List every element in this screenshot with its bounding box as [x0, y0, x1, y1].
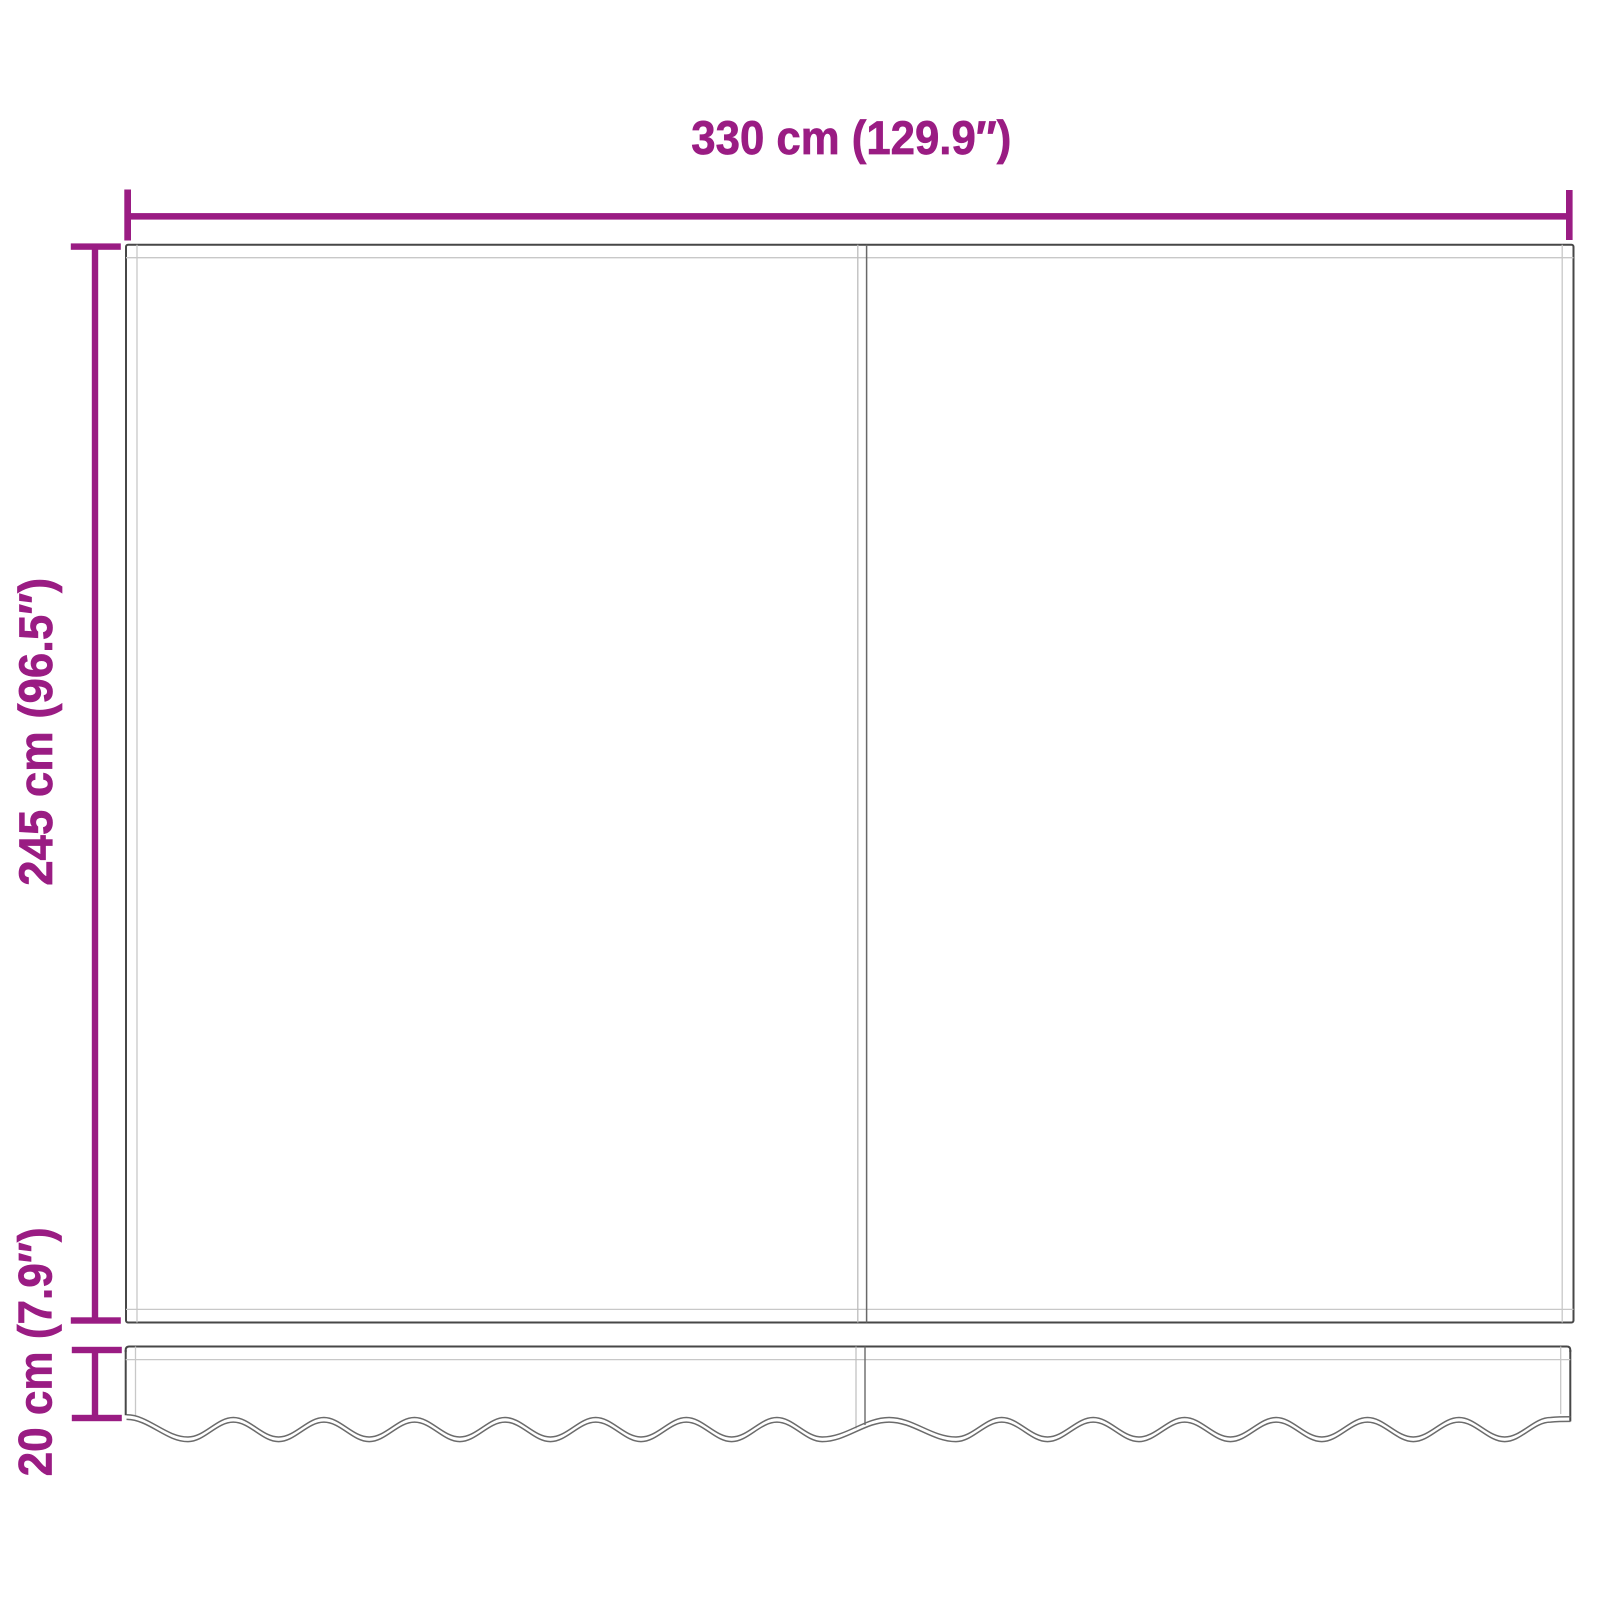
svg-text:330 cm (129.9″): 330 cm (129.9″)	[691, 111, 1011, 164]
svg-text:20 cm (7.9″): 20 cm (7.9″)	[9, 1227, 62, 1476]
svg-text:245 cm (96.5″): 245 cm (96.5″)	[9, 578, 62, 886]
